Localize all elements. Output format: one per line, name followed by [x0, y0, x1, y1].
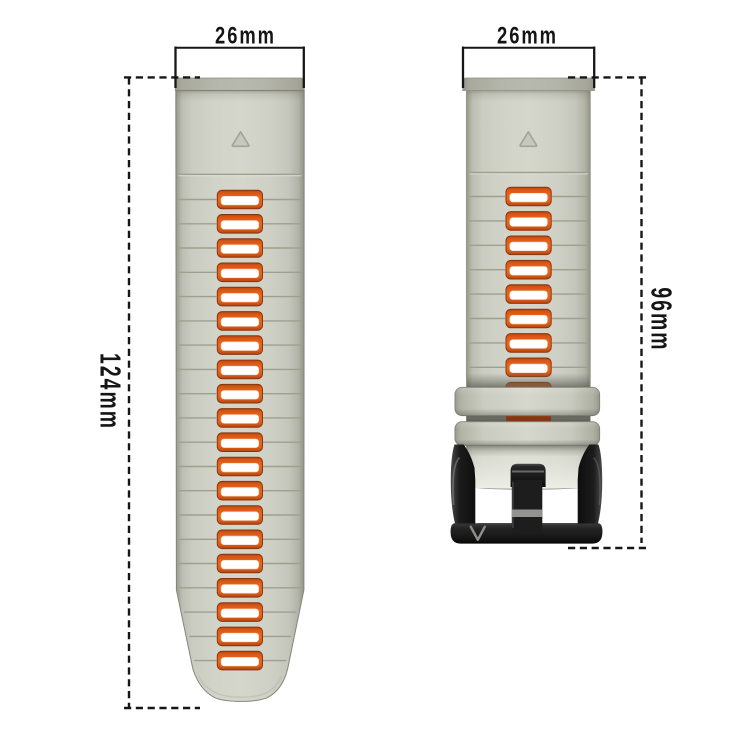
svg-text:124mm: 124mm	[93, 353, 125, 430]
svg-text:96mm: 96mm	[644, 287, 676, 351]
svg-text:26mm: 26mm	[215, 21, 276, 49]
svg-text:26mm: 26mm	[497, 21, 558, 49]
